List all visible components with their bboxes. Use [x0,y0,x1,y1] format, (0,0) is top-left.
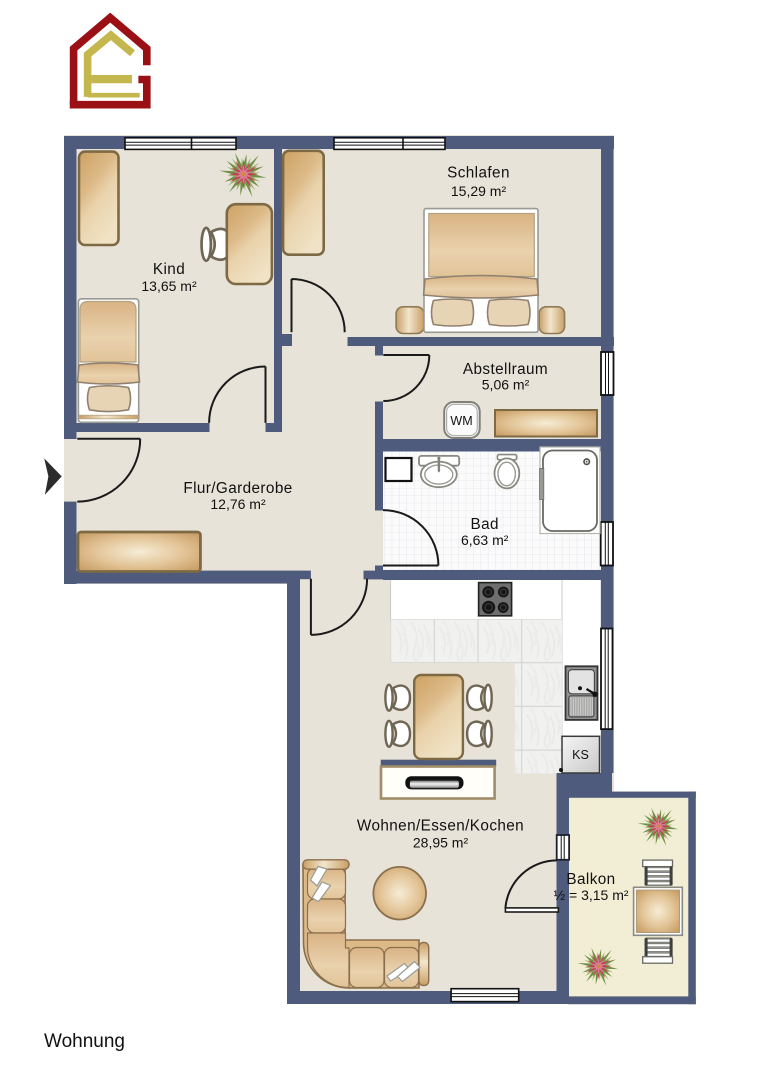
svg-text:5,06 m²: 5,06 m² [482,377,530,393]
svg-text:½ = 3,15 m²: ½ = 3,15 m² [553,887,628,903]
svg-text:28,95 m²: 28,95 m² [413,835,469,851]
svg-text:Abstellraum: Abstellraum [463,361,548,378]
svg-text:WM: WM [450,414,472,428]
svg-text:6,63 m²: 6,63 m² [461,532,509,548]
svg-text:KS: KS [572,748,589,762]
svg-text:13,65 m²: 13,65 m² [141,278,197,294]
svg-text:15,29 m²: 15,29 m² [451,183,507,199]
svg-text:Wohnen/Essen/Kochen: Wohnen/Essen/Kochen [357,818,524,835]
svg-text:Balkon: Balkon [566,871,615,888]
svg-text:Wohnung: Wohnung [44,1031,125,1052]
svg-text:Schlafen: Schlafen [447,165,510,182]
svg-text:Flur/Garderobe: Flur/Garderobe [183,480,292,497]
svg-text:12,76 m²: 12,76 m² [210,496,266,512]
svg-text:Bad: Bad [470,516,498,533]
svg-text:Kind: Kind [153,261,185,278]
